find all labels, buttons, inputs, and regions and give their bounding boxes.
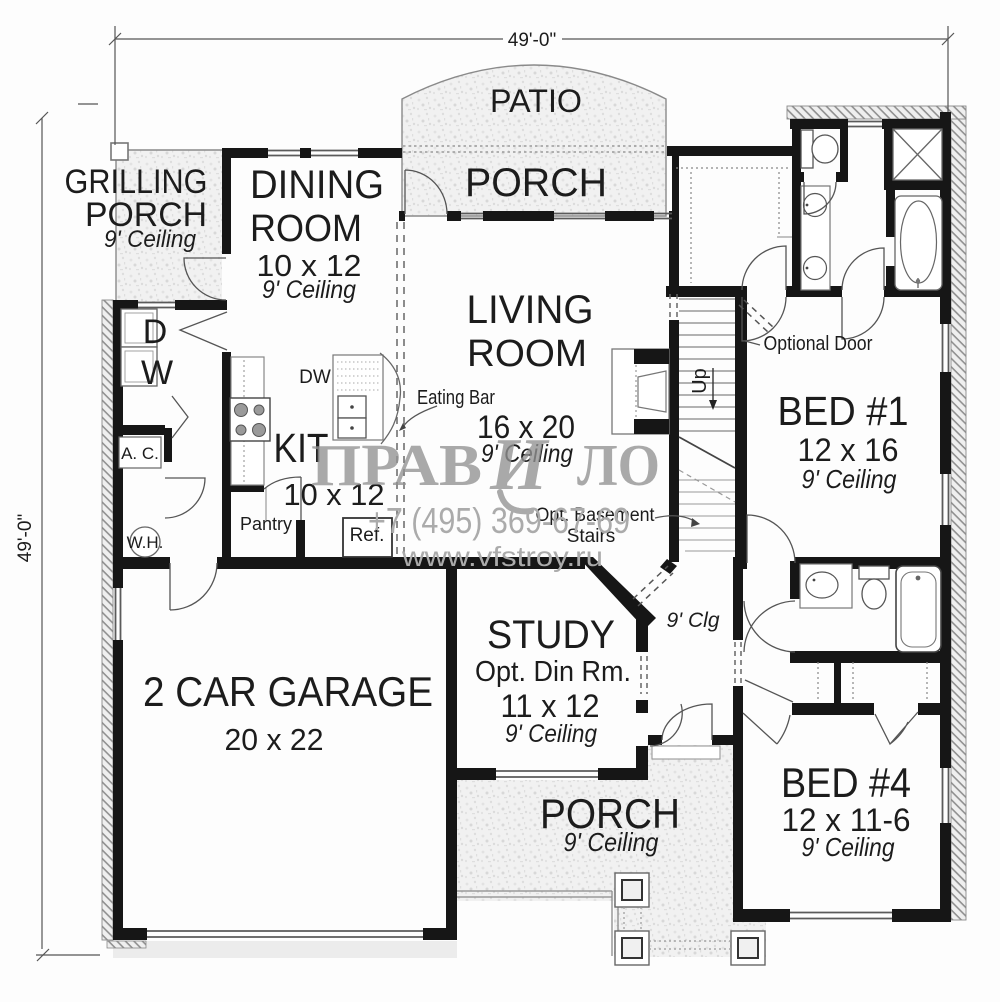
svg-text:Opt. Din Rm.: Opt. Din Rm.: [475, 656, 631, 688]
svg-text:9' Ceiling: 9' Ceiling: [104, 226, 197, 253]
svg-text:PATIO: PATIO: [490, 83, 582, 119]
svg-text:Eating Bar: Eating Bar: [417, 387, 495, 409]
svg-text:BED #1: BED #1: [778, 388, 909, 434]
svg-text:ЛО: ЛО: [577, 432, 660, 498]
svg-text:9' Ceiling: 9' Ceiling: [564, 827, 659, 857]
svg-text:ПРАВ: ПРАВ: [311, 432, 482, 498]
svg-text:PORCH: PORCH: [465, 161, 607, 205]
svg-text:2 CAR GARAGE: 2 CAR GARAGE: [143, 668, 433, 715]
svg-text:A. C.: A. C.: [121, 444, 159, 463]
svg-text:ROOM: ROOM: [250, 208, 362, 250]
svg-text:9' Ceiling: 9' Ceiling: [262, 276, 356, 304]
svg-text:+7 (495) 369-67-69: +7 (495) 369-67-69: [368, 500, 630, 541]
svg-text:9' Clg: 9' Clg: [666, 609, 719, 632]
svg-text:LIVING: LIVING: [467, 288, 594, 332]
svg-text:9' Ceiling: 9' Ceiling: [802, 832, 895, 862]
svg-text:9' Ceiling: 9' Ceiling: [802, 464, 897, 494]
svg-text:DINING: DINING: [250, 163, 384, 207]
svg-text:Up: Up: [689, 368, 711, 394]
svg-text:49'-0": 49'-0": [15, 514, 36, 562]
svg-text:20 x 22: 20 x 22: [225, 722, 324, 757]
svg-text:11 x 12: 11 x 12: [501, 688, 600, 724]
svg-text:Optional Door: Optional Door: [764, 333, 873, 355]
svg-text:49'-0": 49'-0": [508, 30, 556, 51]
svg-text:STUDY: STUDY: [487, 613, 615, 657]
svg-text:BED #4: BED #4: [781, 759, 911, 806]
svg-text:W: W: [141, 354, 173, 392]
svg-text:ROOM: ROOM: [467, 333, 587, 375]
svg-text:DW: DW: [299, 367, 331, 388]
svg-text:D: D: [143, 313, 168, 351]
svg-text:W.H.: W.H.: [127, 533, 164, 552]
svg-text:www.vfstroy.ru: www.vfstroy.ru: [401, 541, 603, 572]
svg-text:Pantry: Pantry: [240, 514, 292, 534]
svg-text:12 x 16: 12 x 16: [798, 432, 899, 468]
svg-text:9' Ceiling: 9' Ceiling: [505, 720, 597, 748]
